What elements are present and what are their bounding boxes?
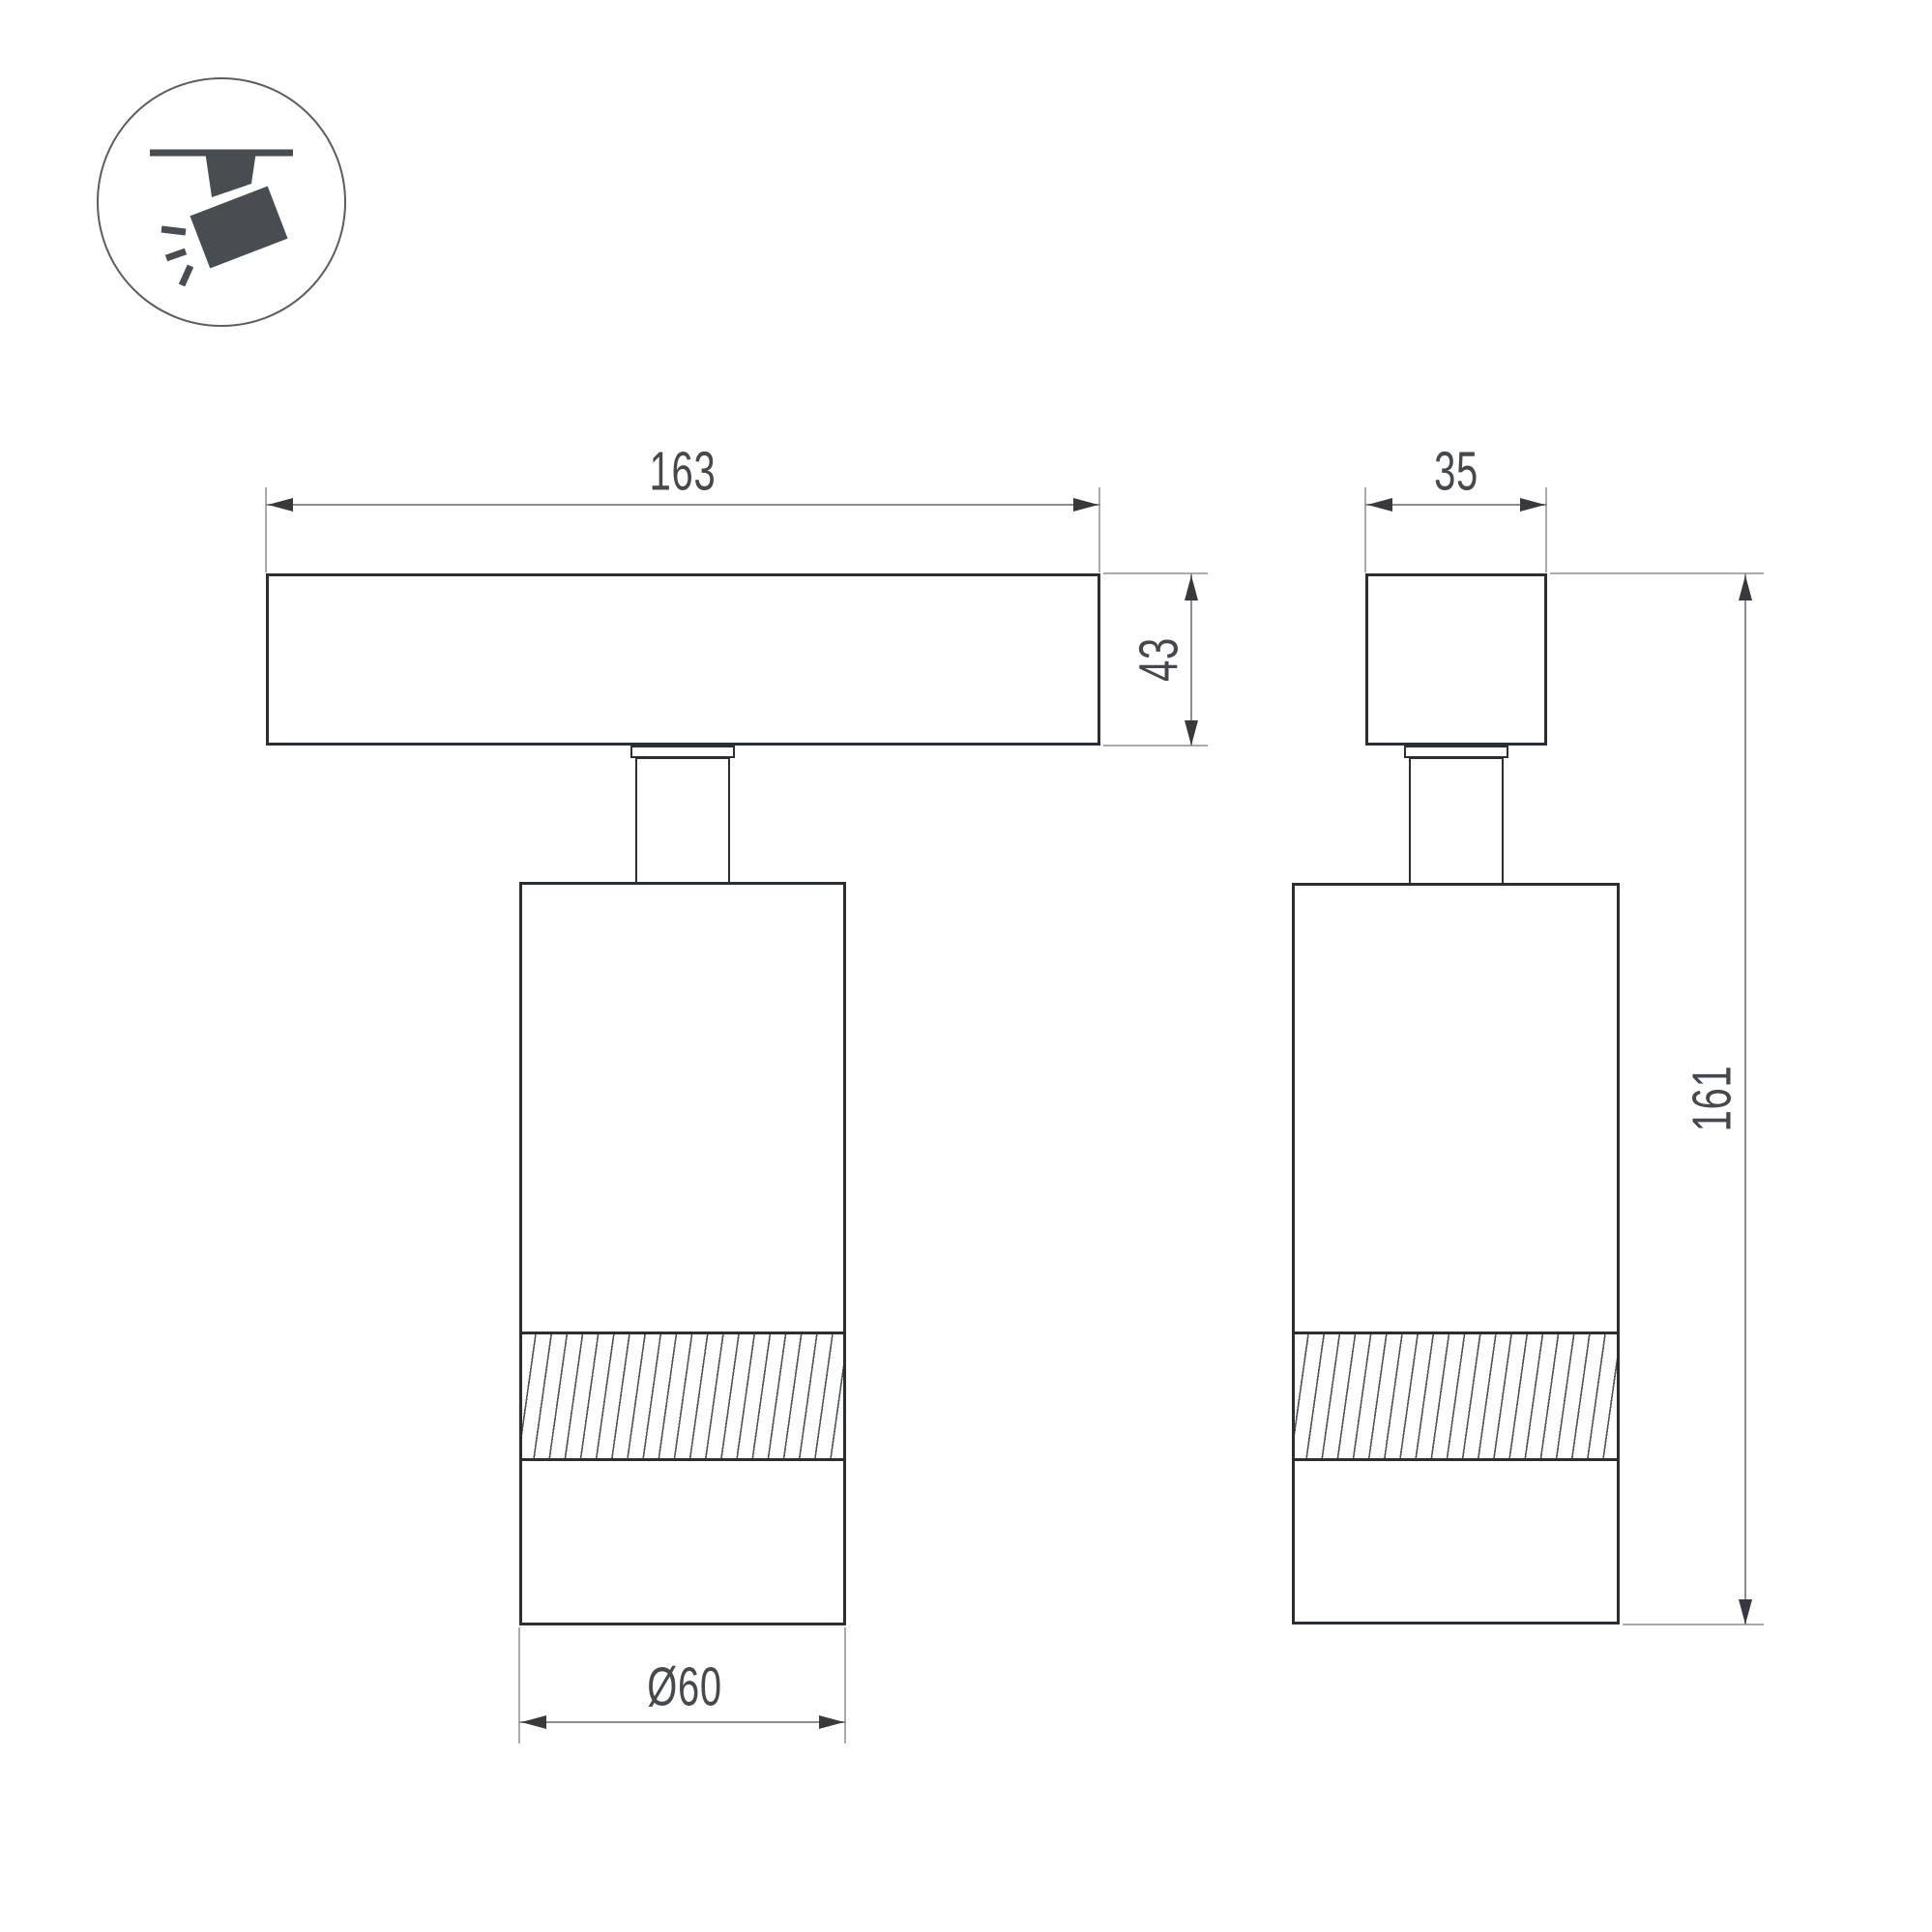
- arrowhead-down-icon: [1185, 720, 1198, 746]
- dimension-drawing-canvas: 163 43 Ø60 35 161: [0, 0, 1932, 1932]
- extension-line: [1098, 487, 1100, 572]
- arrowhead-left-icon: [1367, 498, 1392, 512]
- icon-light-ray-3: [182, 266, 190, 285]
- arrowhead-up-icon: [1739, 575, 1752, 600]
- side-cylinder-body: [1292, 883, 1620, 1625]
- icon-light-ray-2: [166, 251, 186, 258]
- extension-line: [518, 1627, 520, 1743]
- arrowhead-right-icon: [1520, 498, 1545, 512]
- dimension-label-body-diameter: Ø60: [647, 1660, 722, 1715]
- icon-mount-stem: [205, 151, 256, 197]
- ceiling-track-spotlight-icon: [95, 75, 348, 329]
- icon-lamp-head: [190, 187, 287, 269]
- front-track-body: [266, 573, 1100, 746]
- dimension-label-overall-height: 161: [1685, 1066, 1741, 1132]
- dimension-label-track-length: 163: [650, 445, 717, 500]
- arrowhead-right-icon: [819, 1715, 844, 1729]
- arrowhead-right-icon: [1073, 498, 1098, 512]
- track-spotlight-icon-svg: [95, 75, 348, 329]
- arrowhead-left-icon: [521, 1715, 546, 1729]
- extension-line: [265, 487, 267, 572]
- side-track-body: [1365, 573, 1547, 746]
- arrowhead-left-icon: [268, 498, 293, 512]
- arrowhead-up-icon: [1185, 575, 1198, 600]
- side-stem: [1409, 757, 1504, 886]
- arrowhead-down-icon: [1739, 1599, 1752, 1625]
- icon-circle-border: [98, 78, 345, 326]
- dimension-label-track-height: 43: [1132, 637, 1187, 682]
- icon-light-ray-1: [161, 229, 186, 232]
- front-cylinder-body: [519, 882, 846, 1625]
- dimension-label-track-width: 35: [1434, 445, 1478, 500]
- dimension-line: [1744, 573, 1746, 1625]
- extension-line: [1550, 572, 1764, 574]
- extension-line: [1545, 487, 1547, 572]
- extension-line: [1364, 487, 1366, 572]
- front-stem: [635, 757, 730, 885]
- dimension-line: [266, 504, 1100, 506]
- dimension-line: [519, 1721, 846, 1723]
- extension-line: [844, 1627, 846, 1743]
